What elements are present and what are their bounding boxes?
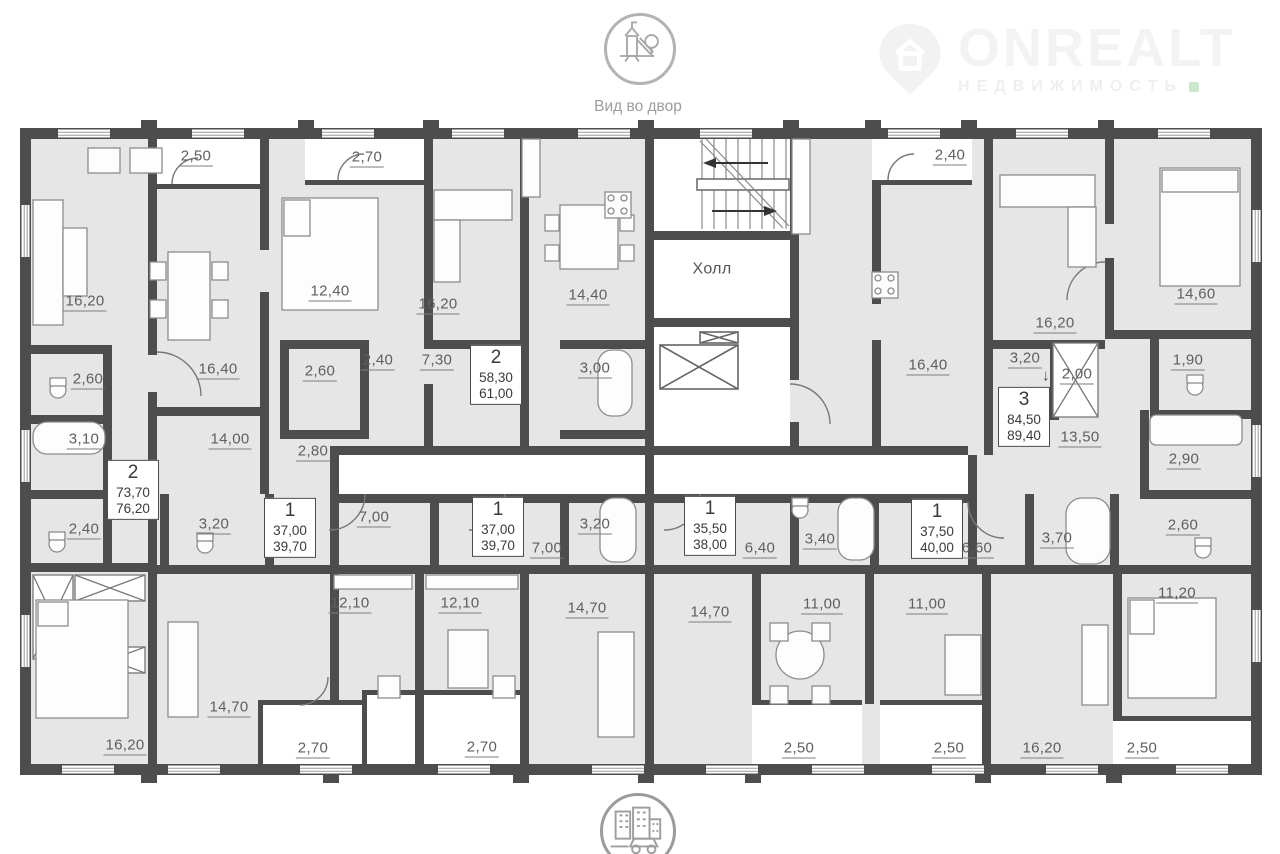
street-view-icon [600,793,676,854]
floor-plan-drawing [0,0,1280,854]
floor-plan-page: Вид во двор ONREALT НЕДВИЖИМОСТЬ [0,0,1280,854]
